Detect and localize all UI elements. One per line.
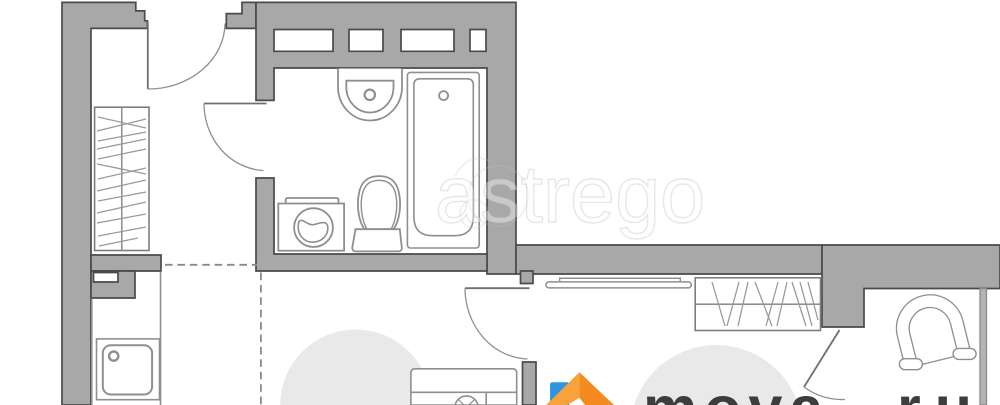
svg-text:astrego: astrego	[435, 150, 705, 240]
svg-text:mova.: mova.	[643, 374, 854, 405]
svg-text:ru: ru	[897, 374, 986, 405]
